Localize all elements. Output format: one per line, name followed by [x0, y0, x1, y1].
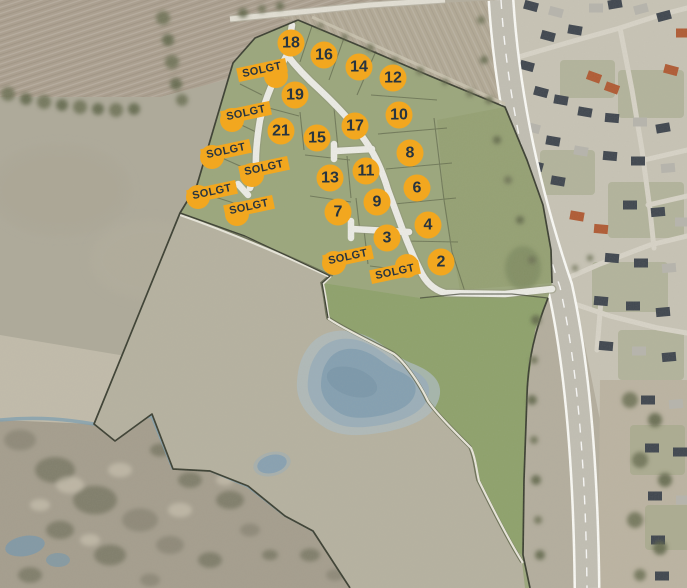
plot-badge-10[interactable]: 10 — [386, 102, 413, 129]
sold-badge: SOLGT — [186, 180, 238, 204]
sold-badge: SOLGT — [220, 101, 272, 125]
plot-badge-17[interactable]: 17 — [342, 113, 369, 140]
plot-badge-7[interactable]: 7 — [325, 199, 352, 226]
site-plan-map: 18161412191021151781311679432SOLGTSOLGTS… — [0, 0, 687, 588]
plot-badge-11[interactable]: 11 — [353, 158, 380, 185]
sold-badge: SOLGT — [200, 139, 252, 163]
plot-badge-8[interactable]: 8 — [397, 140, 424, 167]
plot-badge-15[interactable]: 15 — [304, 125, 331, 152]
plot-badge-12[interactable]: 12 — [380, 65, 407, 92]
plot-badge-9[interactable]: 9 — [364, 189, 391, 216]
plot-badge-21[interactable]: 21 — [268, 118, 295, 145]
sold-badge: SOLGT — [238, 156, 290, 180]
plot-badge-14[interactable]: 14 — [346, 54, 373, 81]
plot-badge-18[interactable]: 18 — [278, 30, 305, 57]
plot-badge-16[interactable]: 16 — [311, 42, 338, 69]
plot-badge-4[interactable]: 4 — [415, 212, 442, 239]
badges-layer: 18161412191021151781311679432SOLGTSOLGTS… — [0, 0, 687, 588]
sold-badge: SOLGT — [223, 195, 275, 219]
sold-badge: SOLGT — [322, 245, 374, 269]
plot-badge-2[interactable]: 2 — [428, 249, 455, 276]
plot-badge-13[interactable]: 13 — [317, 165, 344, 192]
plot-badge-6[interactable]: 6 — [404, 175, 431, 202]
plot-badge-19[interactable]: 19 — [282, 82, 309, 109]
plot-badge-3[interactable]: 3 — [374, 225, 401, 252]
